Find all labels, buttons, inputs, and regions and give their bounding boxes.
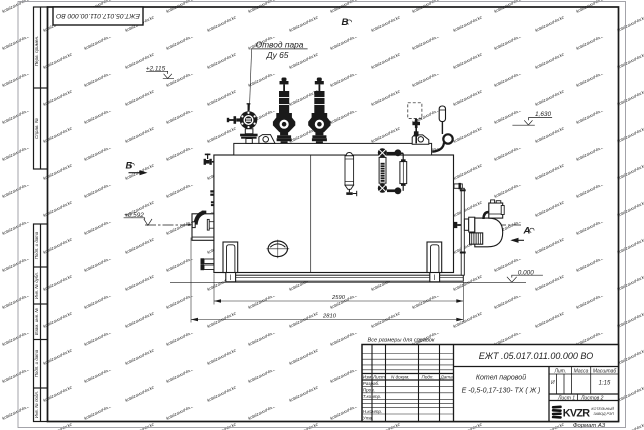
svg-text:А: А: [523, 226, 531, 237]
svg-text:Масштаб: Масштаб: [593, 368, 617, 374]
svg-text:Справ. №: Справ. №: [34, 118, 39, 139]
svg-text:Подп. и дата: Подп. и дата: [34, 349, 39, 377]
svg-text:Перв. примен.: Перв. примен.: [34, 36, 39, 67]
svg-text:Е -0,5-0,17-130- ТХ ( Ж ): Е -0,5-0,17-130- ТХ ( Ж ): [462, 388, 541, 395]
svg-text:Разраб.: Разраб.: [363, 381, 380, 386]
svg-text:Инв. № подл.: Инв. № подл.: [34, 391, 39, 418]
svg-text:Все размеры для справок: Все размеры для справок: [368, 338, 435, 344]
svg-text:ЕЖТ.05.017.011.00.000 ВО: ЕЖТ.05.017.011.00.000 ВО: [55, 12, 140, 19]
svg-text:Н.контр.: Н.контр.: [363, 409, 382, 414]
svg-text:Подп.: Подп.: [422, 374, 434, 379]
svg-text:Формат А3: Формат А3: [573, 423, 606, 429]
svg-text:1:15: 1:15: [599, 381, 611, 387]
svg-text:И: И: [551, 380, 555, 386]
svg-text:Лит.: Лит.: [553, 368, 566, 374]
svg-text:2810: 2810: [322, 313, 337, 319]
svg-text:Подп. и дата: Подп. и дата: [34, 231, 39, 259]
svg-text:Взам. инв. №: Взам. инв. №: [34, 308, 39, 335]
svg-text:Утв.: Утв.: [363, 416, 373, 421]
svg-text:KVZR: KVZR: [563, 407, 590, 419]
svg-text:ЕЖТ .05.017.011.00.000 ВО: ЕЖТ .05.017.011.00.000 ВО: [479, 351, 593, 361]
svg-text:Изм.: Изм.: [363, 374, 373, 379]
svg-text:1,630: 1,630: [535, 111, 551, 118]
svg-text:Инв. № дубл.: Инв. № дубл.: [34, 272, 39, 299]
svg-text:Пров.: Пров.: [363, 388, 375, 393]
svg-text:КОТЕЛЬНЫЙ: КОТЕЛЬНЫЙ: [591, 407, 614, 411]
svg-text:N докум.: N докум.: [391, 374, 410, 379]
svg-text:Лист: Лист: [372, 374, 385, 379]
svg-text:Отвод пара: Отвод пара: [256, 39, 304, 49]
svg-text:2590: 2590: [331, 295, 346, 301]
svg-text:Масса: Масса: [574, 368, 589, 374]
svg-text:Дата: Дата: [440, 374, 454, 379]
svg-text:ЗАВОД РЭП: ЗАВОД РЭП: [593, 412, 614, 416]
svg-text:Т.контр.: Т.контр.: [363, 394, 382, 399]
svg-text:Б: Б: [126, 161, 133, 172]
svg-text:Ду 65: Ду 65: [266, 50, 289, 60]
svg-text:Котел паровой: Котел паровой: [476, 374, 526, 382]
